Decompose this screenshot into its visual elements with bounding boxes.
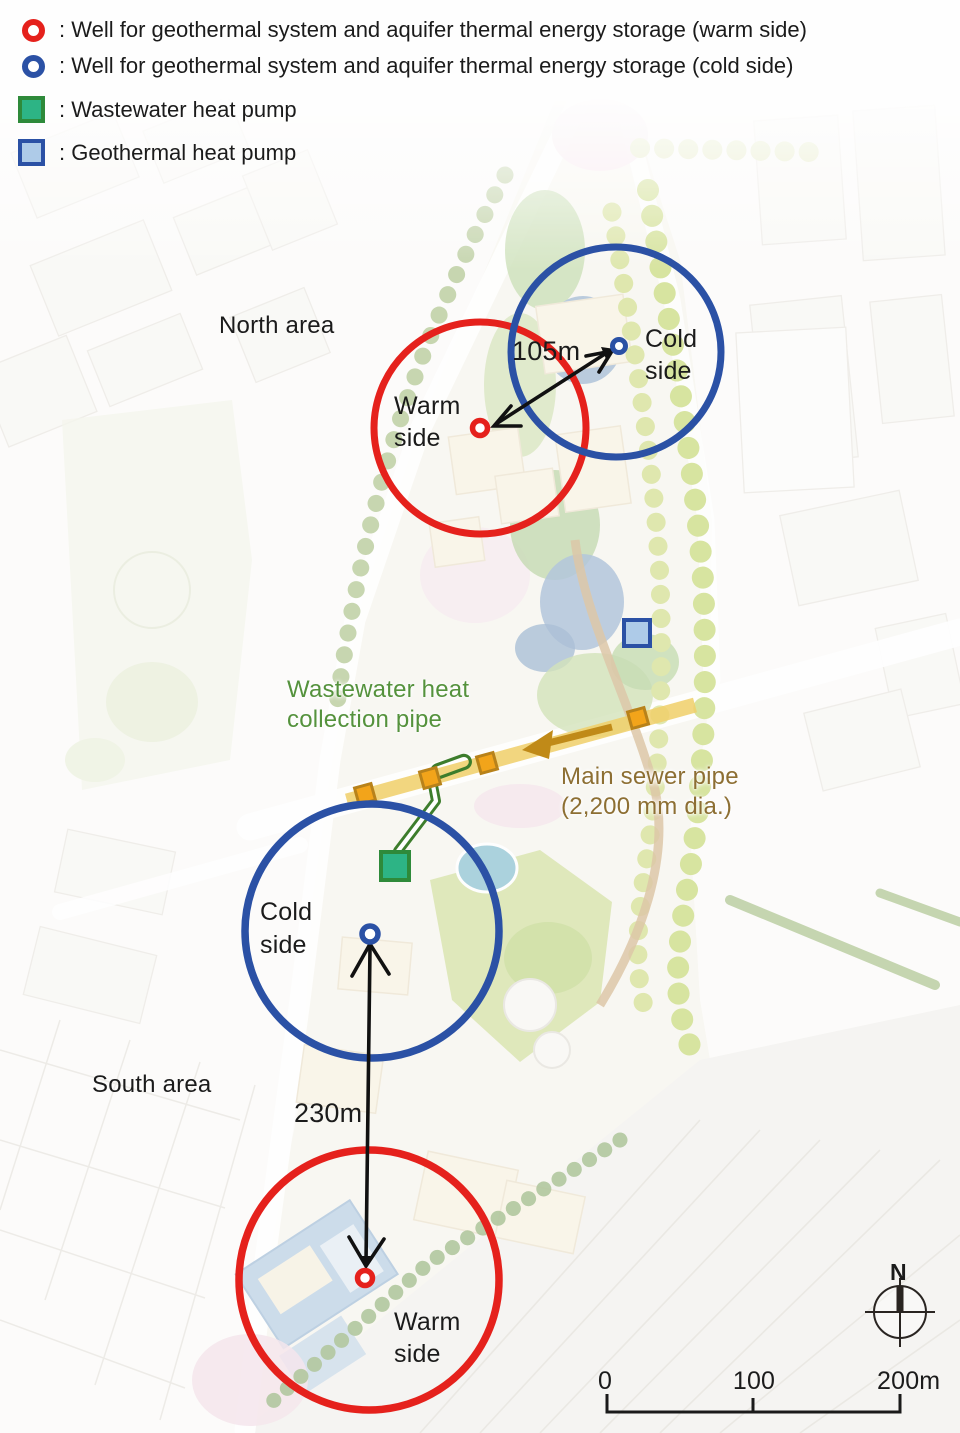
legend-item-label: : Well for geothermal system and aquifer…	[59, 53, 794, 79]
geothermal-heat-pump-icon	[18, 139, 45, 166]
legend-item-label: : Well for geothermal system and aquifer…	[59, 17, 807, 43]
north-area-label: North area	[219, 311, 334, 340]
scale-label-0: 0	[598, 1366, 612, 1397]
warm-well-icon	[22, 19, 45, 42]
scale-label-100: 100	[726, 1366, 782, 1397]
south-warm-well-marker	[358, 1271, 373, 1286]
south-area-label: South area	[92, 1070, 211, 1099]
north-distance-label: 105m	[512, 335, 580, 368]
north-warm-well-marker	[473, 421, 488, 436]
compass-north-label: N	[890, 1258, 907, 1286]
legend-item-cold-well: : Well for geothermal system and aquifer…	[20, 53, 794, 79]
legend-item-geothermal-heat-pump: : Geothermal heat pump	[18, 139, 296, 166]
north-cold-side-label: Cold side	[645, 323, 697, 387]
wastewater-pipe-label: Wastewater heat collection pipe	[287, 675, 469, 735]
north-cold-well-marker	[613, 340, 626, 353]
north-warm-side-label: Warm side	[394, 390, 461, 454]
south-distance-label: 230m	[294, 1097, 362, 1130]
legend-item-label: : Geothermal heat pump	[59, 140, 296, 166]
geothermal-heat-pump-marker	[624, 620, 650, 646]
legend-item-label: : Wastewater heat pump	[59, 97, 297, 123]
main-sewer-pipe-label: Main sewer pipe (2,200 mm dia.)	[561, 762, 739, 822]
scale-label-200m: 200m	[877, 1366, 940, 1397]
cold-well-icon	[22, 55, 45, 78]
south-cold-side-label: Cold side	[260, 896, 312, 962]
legend-item-warm-well: : Well for geothermal system and aquifer…	[20, 17, 807, 43]
legend-item-wastewater-heat-pump: : Wastewater heat pump	[18, 96, 297, 123]
south-cold-well-marker	[362, 926, 378, 942]
south-warm-side-label: Warm side	[394, 1306, 461, 1370]
wastewater-heat-pump-marker	[381, 852, 409, 880]
wastewater-heat-pump-icon	[18, 96, 45, 123]
site-plan-figure: North area Warm side Cold side 105m Wast…	[0, 0, 960, 1433]
